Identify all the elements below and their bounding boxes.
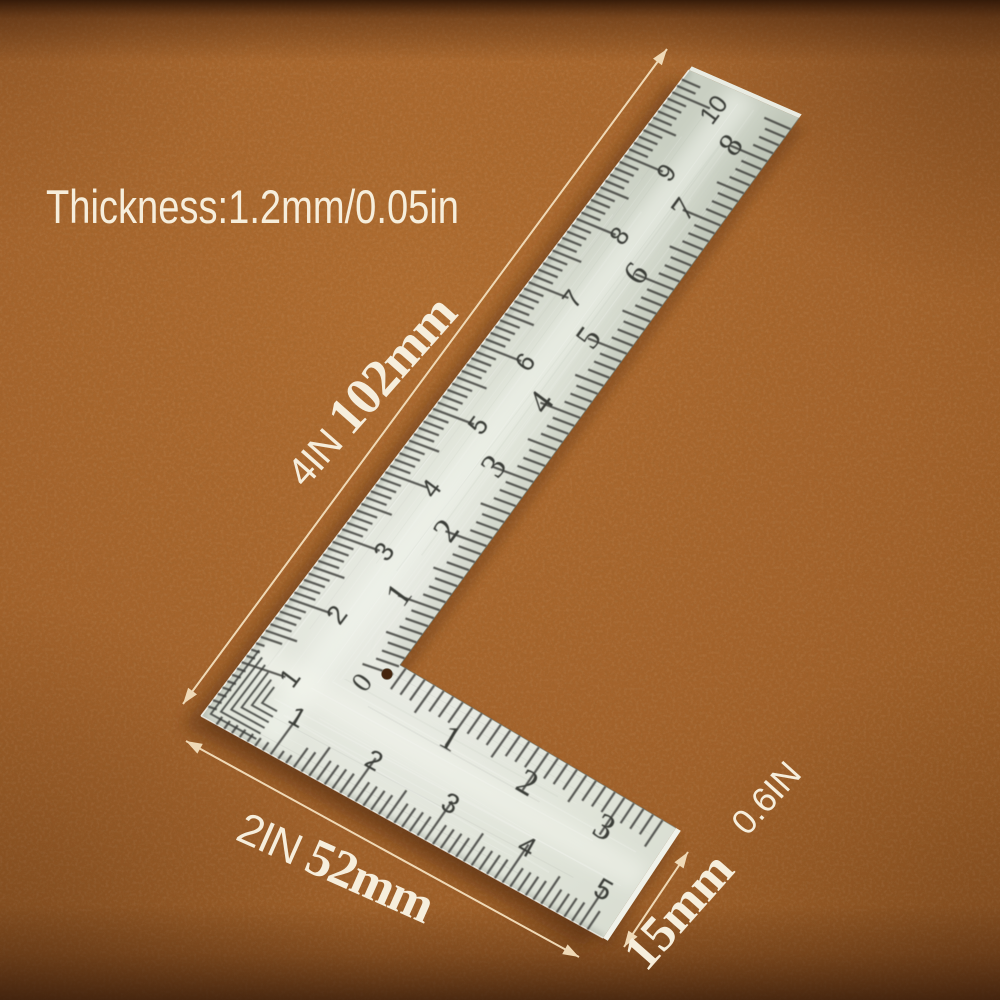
svg-text:Thickness:1.2mm/0.05in: Thickness:1.2mm/0.05in bbox=[46, 180, 459, 233]
